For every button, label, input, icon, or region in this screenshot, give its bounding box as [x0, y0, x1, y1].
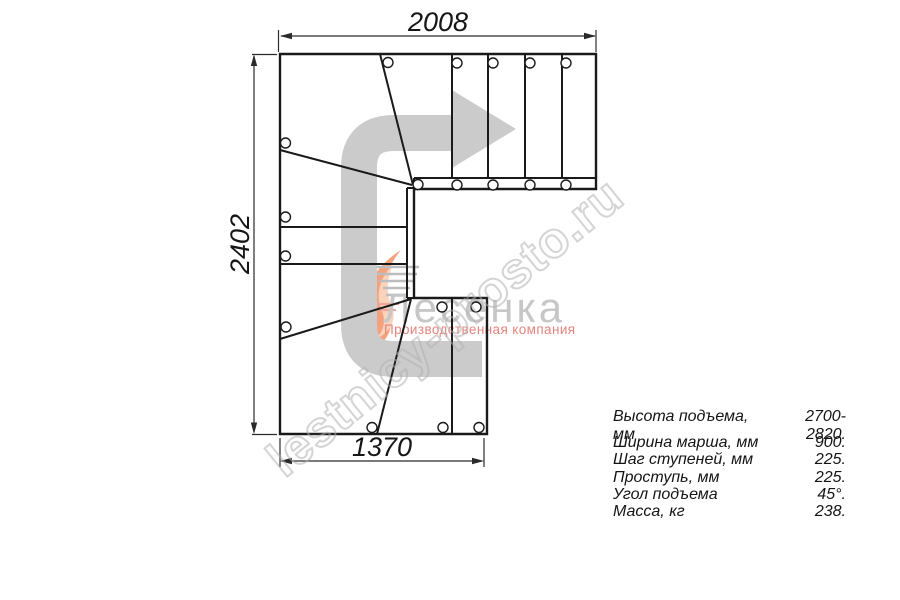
spec-label: Проступь, мм — [613, 469, 719, 487]
spec-value: 45°. — [817, 486, 846, 504]
spec-value: 238. — [815, 503, 846, 521]
spec-row: Проступь, мм 225. — [613, 469, 846, 486]
dim-top-label: 2008 — [407, 7, 468, 37]
spec-row: Высота подъема, мм 2700-2820. — [613, 417, 846, 434]
spec-value: 900. — [815, 434, 846, 452]
spec-row: Шаг ступеней, мм 225. — [613, 452, 846, 469]
dim-bottom-label: 1370 — [352, 432, 412, 462]
specs-table: Высота подъема, мм 2700-2820. Ширина мар… — [613, 417, 846, 521]
spec-value: 225. — [815, 469, 846, 487]
spec-label: Угол подъема — [613, 486, 718, 504]
stringer-lines — [407, 178, 596, 298]
spec-value: 225. — [815, 451, 846, 469]
spec-label: Ширина марша, мм — [613, 434, 758, 452]
spec-label: Масса, кг — [613, 503, 685, 521]
spec-row: Угол подъема 45°. — [613, 486, 846, 503]
staircase-drawing-canvas: Лесенка Производственная компания — [0, 0, 900, 600]
direction-arrow — [359, 90, 516, 359]
spec-row: Масса, кг 238. — [613, 503, 846, 520]
spec-label: Шаг ступеней, мм — [613, 451, 753, 469]
dim-left-label: 2402 — [225, 214, 255, 275]
